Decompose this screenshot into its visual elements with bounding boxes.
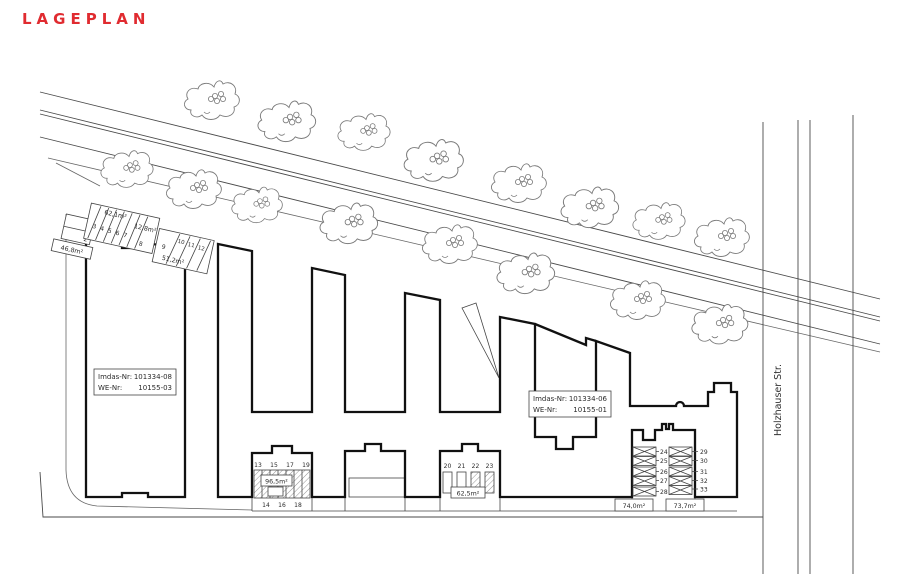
stall-number: 31 <box>700 469 708 476</box>
parking-south-20-23: 20 21 22 23 62,5m² <box>443 463 494 498</box>
area-label: 74,0m² <box>623 503 646 510</box>
stall-number: 17 <box>286 462 294 469</box>
holzhauser-street-lines <box>763 115 853 574</box>
building-a-outline <box>86 233 185 497</box>
we-label: WE-Nr: <box>533 406 557 414</box>
stall-number: 23 <box>486 463 494 470</box>
stall-number: 21 <box>458 463 466 470</box>
imdas-value: 101334-08 <box>134 373 172 381</box>
stall-number: 20 <box>444 463 452 470</box>
stall-number: 32 <box>700 478 708 485</box>
stall-number: 24 <box>660 449 668 456</box>
stall-number: 26 <box>660 469 668 476</box>
imdas-value: 101334-06 <box>569 395 608 403</box>
info-box-building-a: Imdas-Nr: 101334-08 WE-Nr: 10155-03 <box>94 369 176 395</box>
area-label: 96,5m² <box>265 479 288 486</box>
info-box-main-building: Imdas-Nr: 101334-06 WE-Nr: 10155-01 <box>529 391 611 417</box>
stall-number: 16 <box>278 502 286 509</box>
stall-number: 30 <box>700 458 708 465</box>
stall-number: 29 <box>700 449 708 456</box>
stall-number: 22 <box>472 463 480 470</box>
stall-number: 13 <box>254 462 262 469</box>
stall-number: 19 <box>302 462 310 469</box>
street-name-label: Holzhauser Str. <box>773 364 784 436</box>
stall-number: 15 <box>270 462 278 469</box>
stall-number: 27 <box>660 478 668 485</box>
area-label: 62,5m² <box>457 491 480 498</box>
lageplan-page: LAGEPLAN <box>0 0 900 574</box>
stall-number: 28 <box>660 489 668 496</box>
area-label: 73,7m² <box>674 503 697 510</box>
we-label: WE-Nr: <box>98 384 122 392</box>
parking-south-13-19: 13 15 17 19 14 16 18 96,5m² <box>254 462 310 509</box>
we-value: 10155-01 <box>573 406 607 414</box>
we-value: 10155-03 <box>138 384 172 392</box>
stall-number: 18 <box>294 502 302 509</box>
site-plan-svg: 1 2 46,8m² 3 4 5 6 7 62,1m² 12,8m² 8 9 <box>0 0 900 574</box>
north-wall-segment <box>535 324 596 345</box>
ramp-wedge <box>462 303 499 378</box>
stall-number: 25 <box>660 458 668 465</box>
stall-number: 33 <box>700 487 708 494</box>
imdas-label: Imdas-Nr: <box>533 395 567 403</box>
stall-number: 14 <box>262 502 270 509</box>
imdas-label: Imdas-Nr: <box>98 373 132 381</box>
